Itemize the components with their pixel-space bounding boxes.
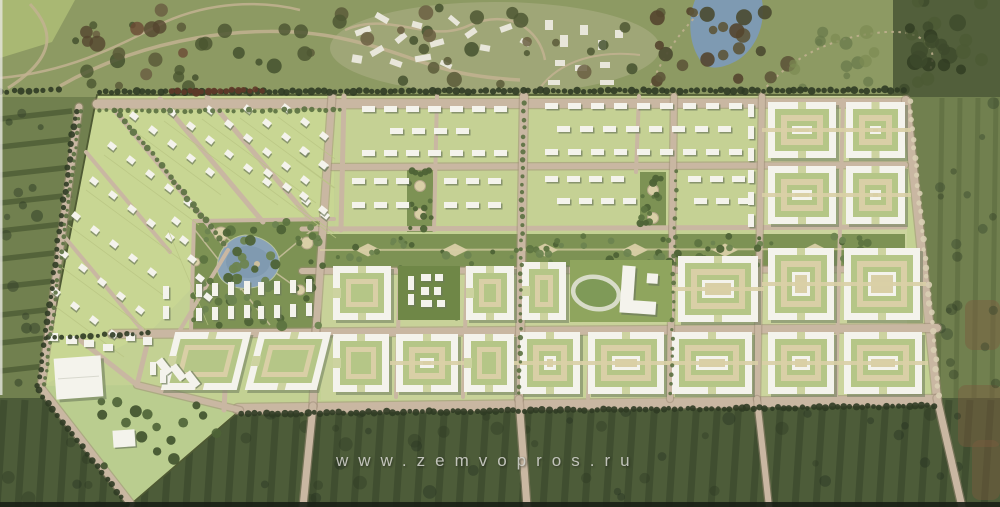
- city-block: [333, 334, 392, 395]
- school-campus: [398, 266, 460, 320]
- city-block: [466, 266, 517, 323]
- stadium: [570, 260, 672, 322]
- city-block: [582, 332, 670, 397]
- city-block: [762, 166, 842, 227]
- city-block: [838, 248, 926, 323]
- city-block: [762, 102, 842, 161]
- city-block: [514, 332, 586, 397]
- city-block: [838, 332, 928, 397]
- city-block: [840, 166, 911, 227]
- city-block: [333, 266, 394, 323]
- city-block: [762, 248, 840, 323]
- city-block: [464, 334, 517, 395]
- city-block: [522, 262, 569, 323]
- watermark: www.zemvopros.ru: [336, 451, 640, 471]
- city-block: [762, 332, 840, 397]
- city-block: [244, 332, 334, 393]
- city-block: [390, 334, 464, 395]
- city-block: [666, 332, 758, 397]
- city-block: [160, 332, 254, 393]
- city-block: [672, 256, 764, 325]
- masterplan-rendering: www.zemvopros.ru: [0, 0, 1000, 507]
- city-block: [840, 102, 911, 161]
- scene-svg: [0, 0, 1000, 507]
